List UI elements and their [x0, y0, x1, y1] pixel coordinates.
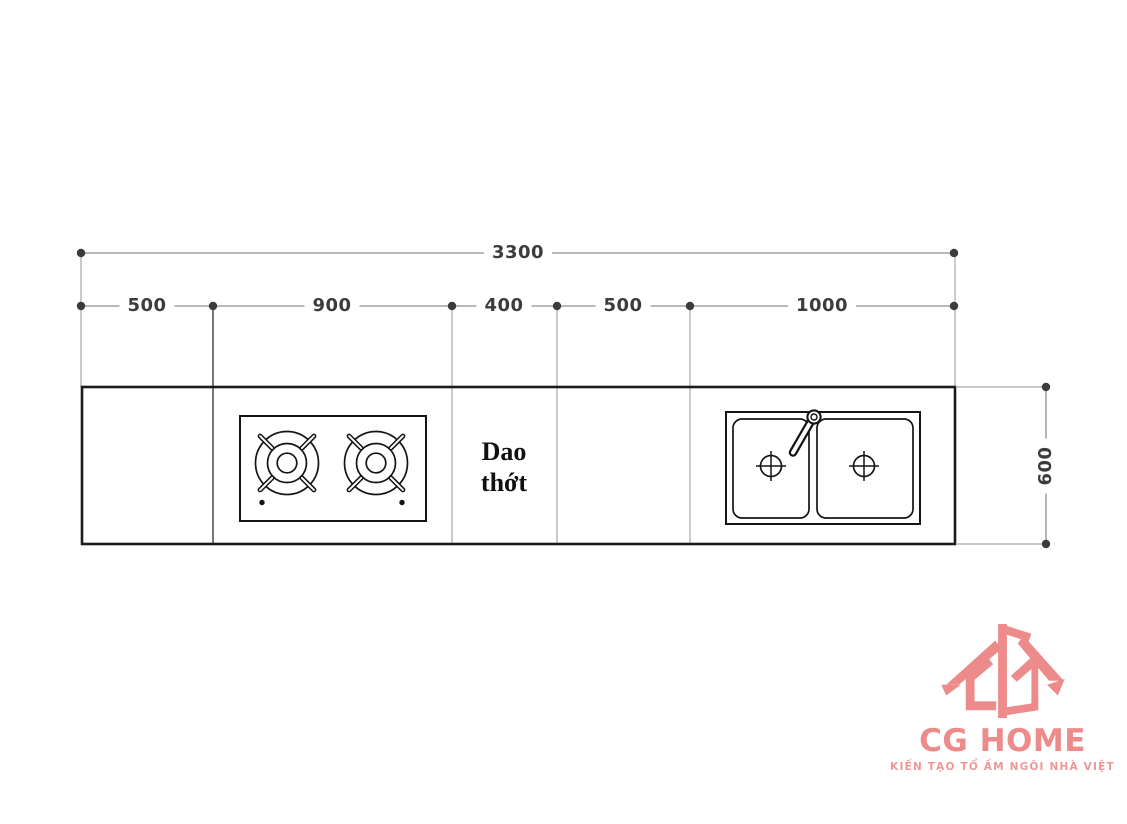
- logo-name: CG HOME: [890, 725, 1115, 758]
- dim-segment-4-label: 500: [595, 296, 650, 316]
- dim-segment-1-label: 500: [119, 296, 174, 316]
- dim-depth-label: 600: [1036, 438, 1056, 493]
- house-logo-icon: [938, 622, 1068, 720]
- logo-tagline: KIẾN TẠO TỔ ẤM NGÔI NHÀ VIỆT: [890, 761, 1115, 773]
- double-sink: [726, 410, 920, 524]
- cutting-board-line2: thớt: [452, 467, 556, 498]
- dim-segment-2-label: 900: [304, 296, 359, 316]
- gas-hob: [240, 416, 426, 521]
- dim-segment-5-label: 1000: [788, 296, 856, 316]
- dim-total-label: 3300: [484, 243, 552, 263]
- kitchen-plan-drawing: 3300 500 900 400 500 1000 600 Dao thớt C…: [0, 0, 1127, 824]
- cutting-board-line1: Dao: [452, 436, 556, 467]
- dim-segment-3-label: 400: [476, 296, 531, 316]
- brand-logo: CG HOME KIẾN TẠO TỔ ẤM NGÔI NHÀ VIỆT: [890, 622, 1115, 773]
- cutting-board-label: Dao thớt: [452, 436, 556, 498]
